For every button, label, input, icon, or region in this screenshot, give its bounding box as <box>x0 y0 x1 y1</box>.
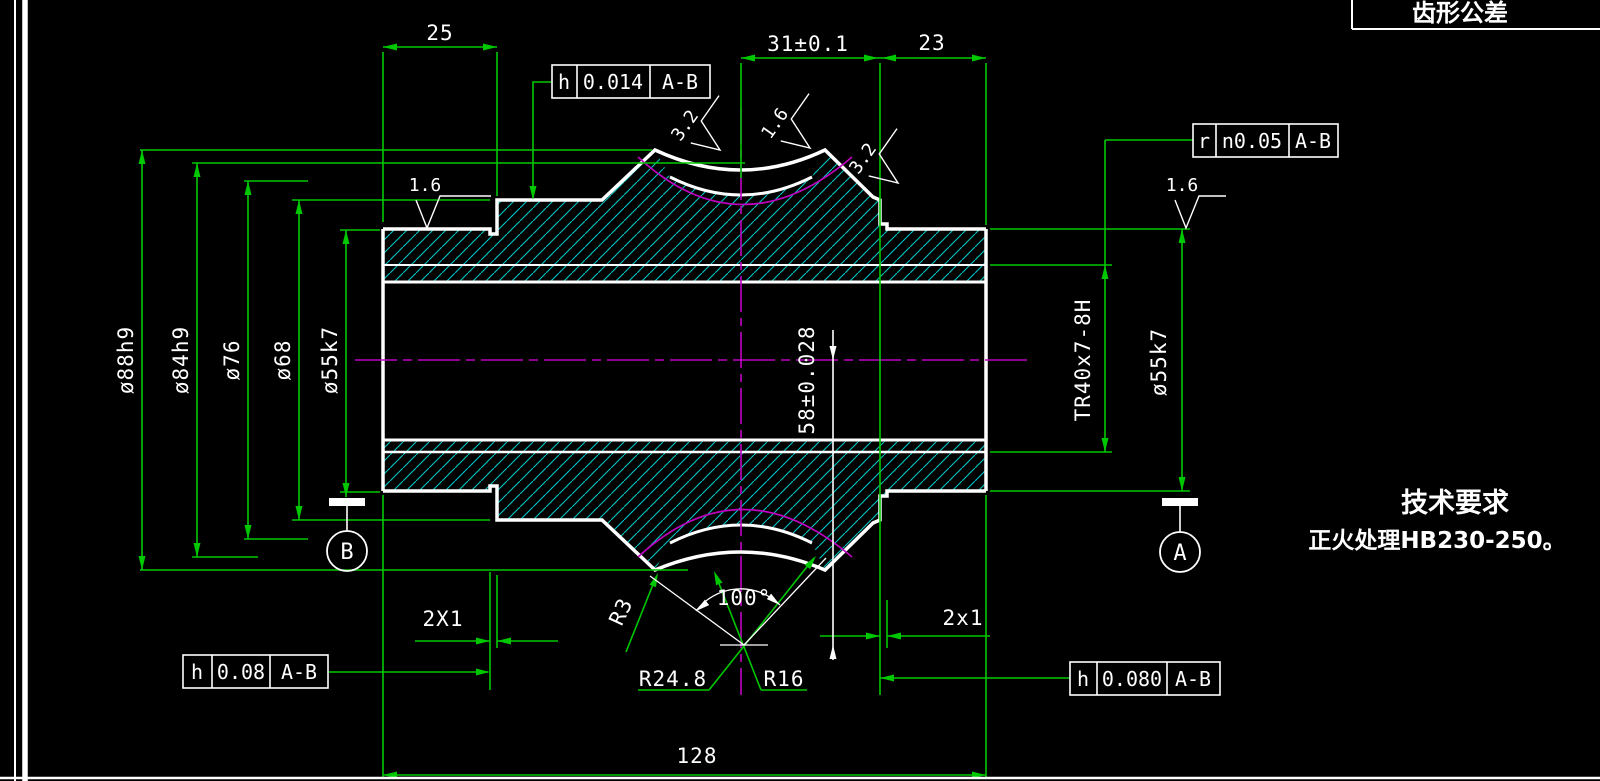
roughness-value: 1.6 <box>409 175 442 196</box>
dim-dia88: ø88h9 <box>114 326 138 394</box>
dim-groove-left: 2X1 <box>423 607 464 631</box>
cad-viewport: 58±0.028 100° 25 31±0.1 23 128 ø88h9 ø84… <box>0 0 1600 781</box>
tooth-tolerance-box: 齿形公差 <box>1352 0 1600 29</box>
gorge-angle-dim: 100° <box>717 586 772 610</box>
fcf-top-tolerance: 0.014 <box>583 70 643 94</box>
fcf-bottom-right: h 0.080 A-B <box>1070 662 1220 695</box>
fcf-right: r n0.05 A-B <box>1193 124 1338 157</box>
dim-dia68: ø68 <box>271 340 295 381</box>
datum-b: B <box>327 498 367 571</box>
roughness-symbol-gorge-left: 3.2 <box>667 84 745 164</box>
datum-b-label: B <box>340 540 353 565</box>
bore-void <box>383 282 986 440</box>
dim-25: 25 <box>426 21 453 45</box>
tech-req-heading: 技术要求 <box>1401 488 1509 519</box>
dim-r3: R3 <box>604 594 637 629</box>
fcf-bottom-left: h 0.08 A-B <box>183 655 328 688</box>
fcf-br-symbol: h <box>1077 667 1089 691</box>
fcf-bl-tolerance: 0.08 <box>217 660 265 684</box>
technical-requirements: 技术要求 正火处理HB230-250。 <box>1308 488 1565 554</box>
dim-r16: R16 <box>764 667 805 691</box>
dim-r248: R24.8 <box>639 667 707 691</box>
fcf-top-symbol: h <box>558 70 570 94</box>
tech-req-note: 正火处理HB230-250。 <box>1308 528 1565 554</box>
datum-a: A <box>1160 498 1200 572</box>
roughness-symbol-right: 1.6 <box>1166 175 1226 228</box>
dim-dia76: ø76 <box>220 340 244 381</box>
fcf-br-datum: A-B <box>1175 667 1211 691</box>
dim-31: 31±0.1 <box>767 32 849 56</box>
tooth-tolerance-label: 齿形公差 <box>1412 0 1508 27</box>
dim-groove-right: 2x1 <box>943 606 984 630</box>
roughness-value: 3.2 <box>845 139 881 178</box>
fcf-right-symbol: r <box>1198 129 1210 153</box>
dim-dia84: ø84h9 <box>169 326 193 394</box>
dim-dia55-right: ø55k7 <box>1147 328 1171 396</box>
roughness-value: 3.2 <box>667 106 703 145</box>
fcf-top-datum: A-B <box>662 70 698 94</box>
roughness-symbol-left: 1.6 <box>409 175 491 228</box>
fcf-bl-datum: A-B <box>281 660 317 684</box>
datum-a-label: A <box>1173 541 1186 566</box>
fcf-top: h 0.014 A-B <box>552 65 710 98</box>
center-distance-dim: 58±0.028 <box>795 325 819 434</box>
dim-128: 128 <box>677 744 718 768</box>
dim-thread: TR40x7-8H <box>1071 299 1095 422</box>
dim-23: 23 <box>918 31 945 55</box>
fcf-right-datum: A-B <box>1295 129 1331 153</box>
fcf-br-tolerance: 0.080 <box>1102 667 1162 691</box>
fcf-right-tolerance: n0.05 <box>1222 129 1282 153</box>
fcf-bl-symbol: h <box>191 660 203 684</box>
dim-dia55-left: ø55k7 <box>318 326 342 394</box>
roughness-value: 1.6 <box>1166 175 1199 196</box>
cad-drawing-canvas[interactable]: 58±0.028 100° 25 31±0.1 23 128 ø88h9 ø84… <box>0 0 1600 781</box>
roughness-value: 1.6 <box>757 104 793 143</box>
